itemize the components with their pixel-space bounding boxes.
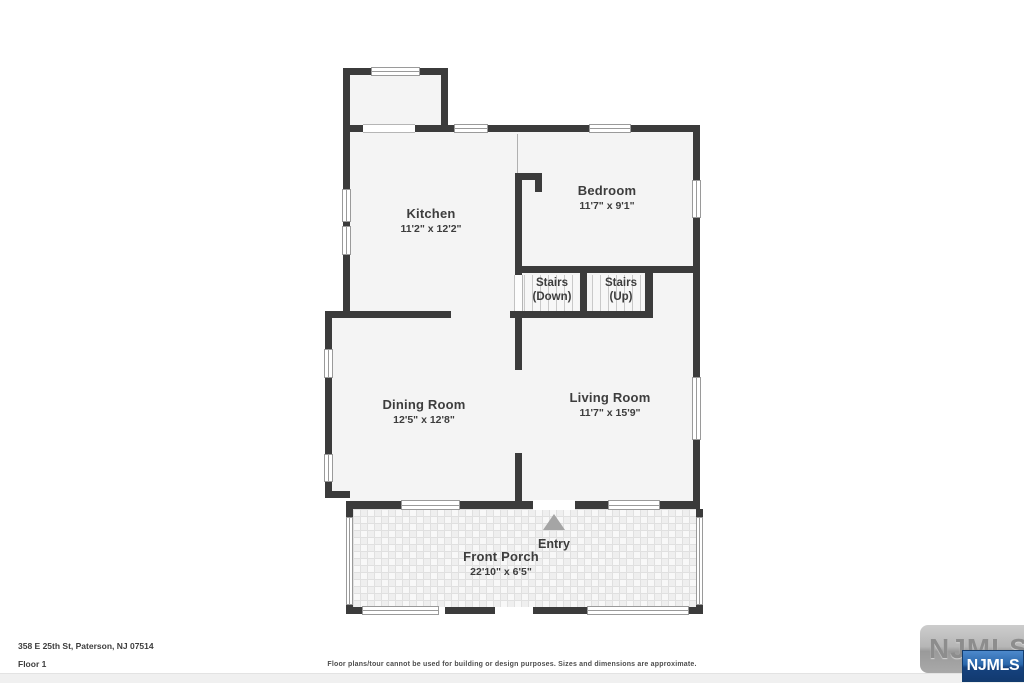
porch-steps-opening xyxy=(495,607,533,614)
wall xyxy=(510,311,653,318)
disclaimer-text: Floor plans/tour cannot be used for buil… xyxy=(327,661,696,668)
front-porch-label: Front Porch 22'10" x 6'5" xyxy=(463,549,539,578)
wall xyxy=(515,266,700,273)
door-leaf-line xyxy=(517,134,518,173)
porch-rail xyxy=(346,517,353,605)
living-room-dims: 11'7" x 15'9" xyxy=(570,407,651,419)
window xyxy=(692,180,701,218)
njmls-badge-text: NJMLS xyxy=(967,657,1020,675)
stair-opening xyxy=(514,275,523,311)
dining-extension-floor xyxy=(332,318,350,492)
floor-number: Floor 1 xyxy=(18,659,46,669)
back-room-floor xyxy=(350,75,441,125)
porch-rail xyxy=(587,606,689,615)
bedroom-label: Bedroom 11'7" x 9'1" xyxy=(578,183,636,212)
stairs-up-line1: Stairs xyxy=(605,276,637,290)
window xyxy=(692,377,701,440)
entry-label: Entry xyxy=(538,537,570,551)
window xyxy=(342,189,351,222)
wall xyxy=(533,607,587,614)
dining-room-dims: 12'5" x 12'8" xyxy=(382,414,465,426)
front-porch-name: Front Porch xyxy=(463,549,539,564)
dining-room-name: Dining Room xyxy=(382,397,465,412)
window xyxy=(589,124,631,133)
bedroom-name: Bedroom xyxy=(578,183,636,198)
wall xyxy=(515,173,522,275)
window xyxy=(324,349,333,378)
living-room-name: Living Room xyxy=(570,390,651,405)
window xyxy=(324,454,333,482)
wall xyxy=(343,68,350,132)
dining-room-label: Dining Room 12'5" x 12'8" xyxy=(382,397,465,426)
window xyxy=(371,67,420,76)
property-address: 358 E 25th St, Paterson, NJ 07514 xyxy=(18,641,154,651)
wall xyxy=(325,311,451,318)
stairs-up-line2: (Up) xyxy=(605,290,637,304)
kitchen-label: Kitchen 11'2" x 12'2" xyxy=(400,206,461,235)
wall xyxy=(688,607,703,614)
wall xyxy=(325,491,350,498)
kitchen-name: Kitchen xyxy=(400,206,461,221)
stairs-down-line1: Stairs xyxy=(533,276,572,290)
front-porch-dims: 22'10" x 6'5" xyxy=(463,566,539,578)
window xyxy=(342,226,351,255)
window xyxy=(401,500,460,510)
wall xyxy=(696,509,703,517)
wall xyxy=(515,311,522,370)
stairs-down-line2: (Down) xyxy=(533,290,572,304)
window xyxy=(608,500,660,510)
njmls-logo-badge: NJMLS xyxy=(962,650,1024,682)
porch-rail xyxy=(696,517,703,605)
living-room-label: Living Room 11'7" x 15'9" xyxy=(570,390,651,419)
wall xyxy=(346,509,353,517)
bedroom-dims: 11'7" x 9'1" xyxy=(578,200,636,212)
door-opening xyxy=(363,124,415,133)
wall xyxy=(535,180,542,192)
wall xyxy=(515,173,542,180)
stairs-up-label: Stairs (Up) xyxy=(605,276,637,304)
entry-arrow-icon xyxy=(543,514,565,530)
stairs-down-label: Stairs (Down) xyxy=(533,276,572,304)
wall xyxy=(343,132,350,318)
porch-rail xyxy=(362,606,439,615)
entry-opening xyxy=(533,500,575,510)
floor-plan: Entry Kitchen 11'2" x 12'2" Bedroom 11'7… xyxy=(0,0,1024,682)
window xyxy=(454,124,488,133)
wall xyxy=(445,607,495,614)
kitchen-dims: 11'2" x 12'2" xyxy=(400,223,461,235)
wall xyxy=(441,68,448,132)
